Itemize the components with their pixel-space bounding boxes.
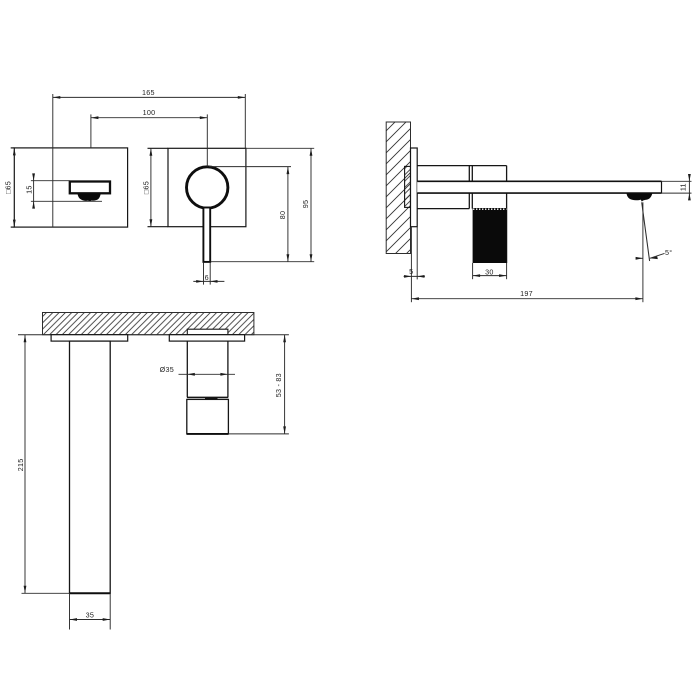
svg-text:□65: □65	[141, 181, 150, 194]
svg-text:5°: 5°	[665, 248, 672, 257]
svg-text:30: 30	[485, 268, 494, 277]
svg-text:5: 5	[409, 267, 413, 276]
svg-text:165: 165	[142, 88, 155, 97]
svg-text:53 - 83: 53 - 83	[274, 373, 283, 397]
svg-text:□65: □65	[3, 181, 12, 194]
svg-text:197: 197	[520, 289, 533, 298]
svg-text:80: 80	[278, 211, 287, 220]
svg-text:11: 11	[679, 183, 688, 191]
svg-text:6: 6	[205, 273, 209, 282]
svg-text:215: 215	[16, 459, 25, 472]
svg-text:15: 15	[25, 185, 34, 194]
svg-text:95: 95	[301, 200, 310, 209]
svg-text:Ø35: Ø35	[160, 365, 174, 374]
svg-text:100: 100	[143, 108, 156, 117]
svg-text:35: 35	[86, 610, 95, 619]
